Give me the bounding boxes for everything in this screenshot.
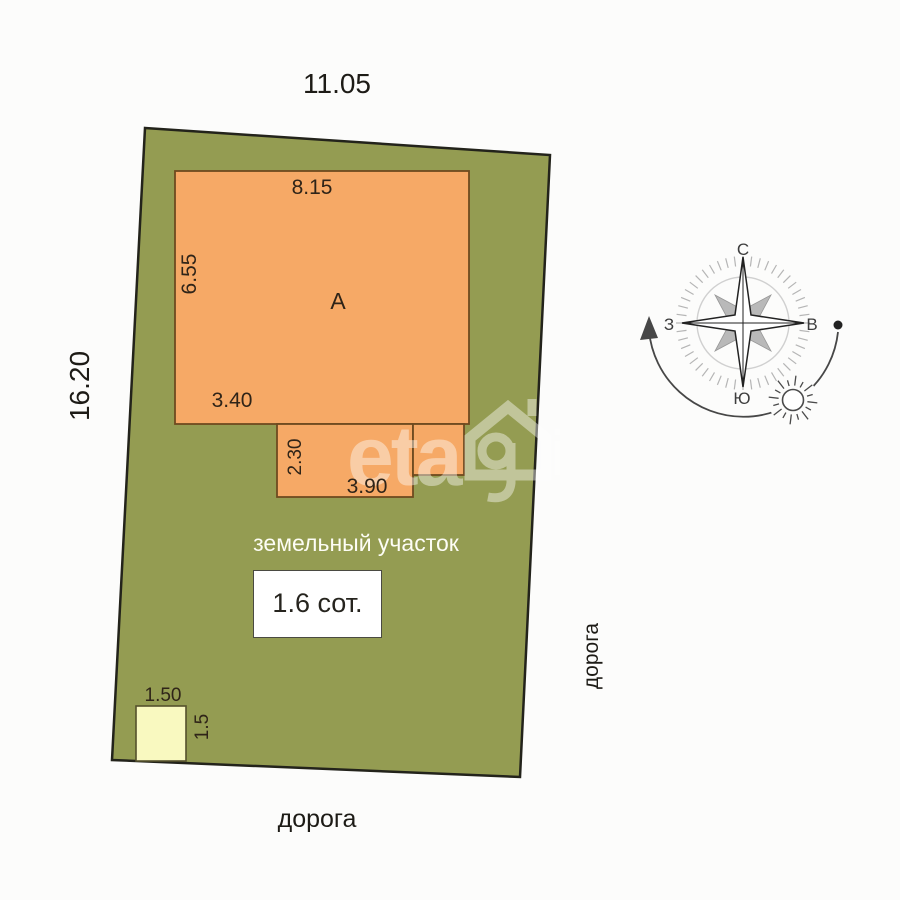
compass-south-label: Ю <box>733 389 750 408</box>
road-right-label: дорога <box>580 606 604 706</box>
area-value: 1.6 сот. <box>254 571 381 635</box>
building-left-dimension: 6.55 <box>178 224 202 324</box>
watermark: eta i <box>345 383 560 523</box>
shed-square <box>136 706 186 761</box>
plot-title: земельный участок <box>226 530 486 557</box>
site-plan: С Ю З В eta i 11.05 16.20 8.15 <box>0 0 900 900</box>
sun-icon <box>768 375 818 425</box>
building-bottom-left-dimension: 3.40 <box>182 389 282 413</box>
plot-top-dimension: 11.05 <box>287 68 387 100</box>
annex-height-dimension: 2.30 <box>285 407 307 507</box>
road-bottom-label: дорога <box>257 805 377 834</box>
compass-east-label: В <box>806 315 817 334</box>
shed-height-dimension: 1.5 <box>192 677 214 777</box>
compass-west-label: З <box>664 315 674 334</box>
watermark-house-icon <box>470 399 546 498</box>
building-top-dimension: 8.15 <box>262 176 362 200</box>
arc-arrowhead <box>640 316 658 340</box>
compass-north-label: С <box>737 240 749 259</box>
building-letter: А <box>314 288 362 315</box>
annex-width-dimension: 3.90 <box>317 475 417 499</box>
plot-left-dimension: 16.20 <box>64 336 96 436</box>
arc-start-dot <box>834 321 843 330</box>
watermark-right-text: i <box>550 417 560 489</box>
area-badge: 1.6 сот. <box>253 570 382 638</box>
sun-core <box>783 390 804 411</box>
